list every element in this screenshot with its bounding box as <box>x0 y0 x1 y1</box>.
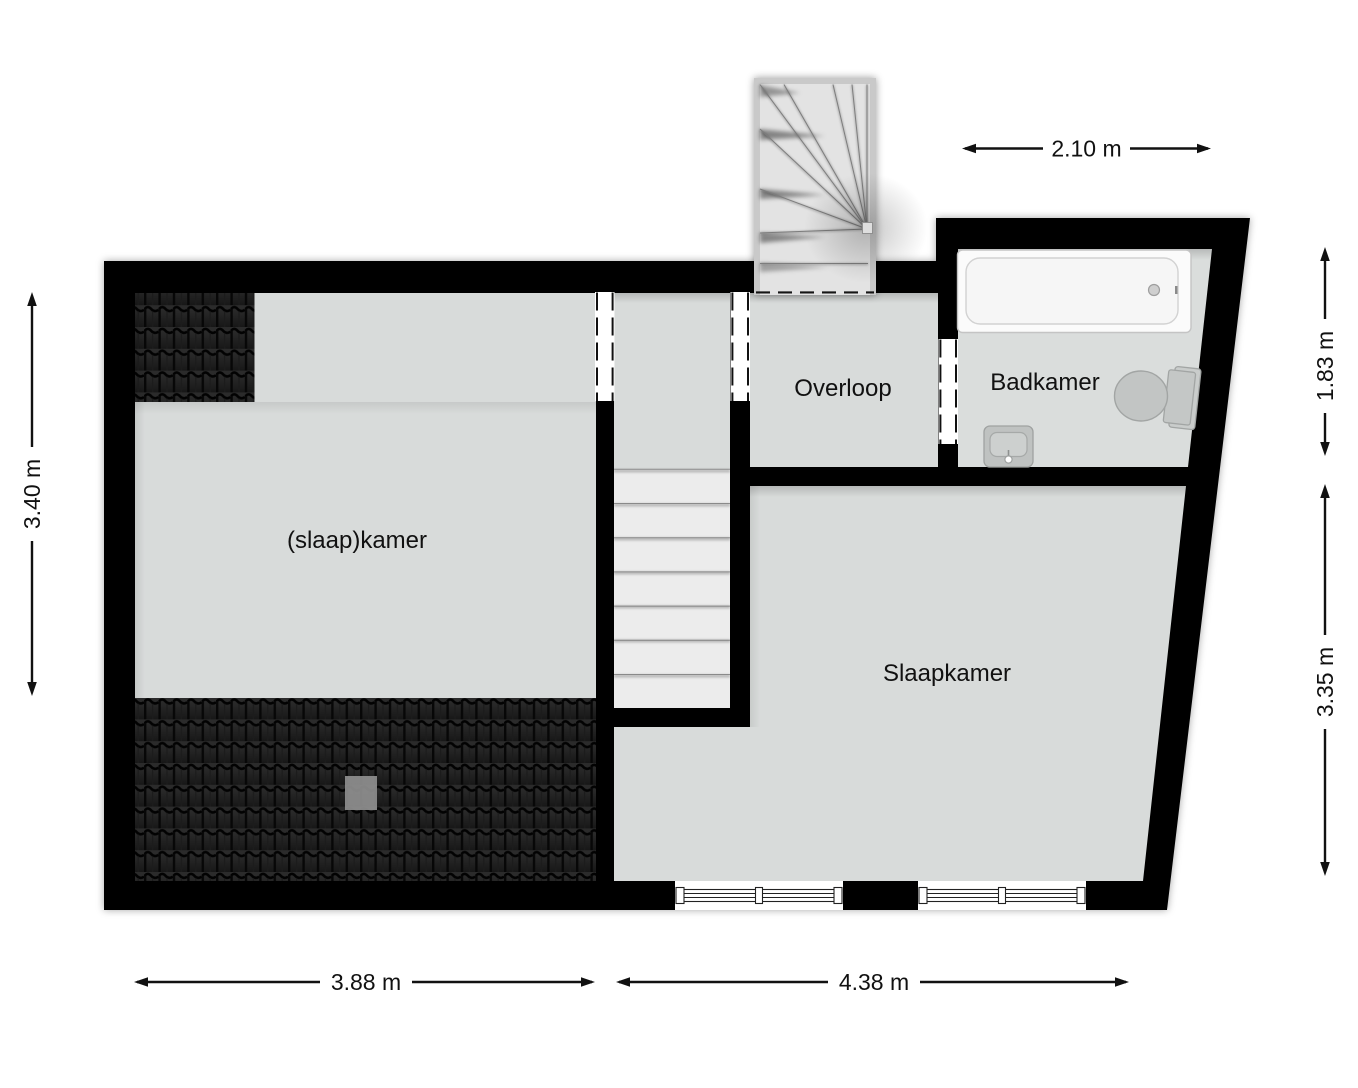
svg-text:3.35 m: 3.35 m <box>1312 647 1338 717</box>
svg-text:4.38 m: 4.38 m <box>839 969 909 995</box>
svg-text:Slaapkamer: Slaapkamer <box>883 660 1011 687</box>
svg-text:2.10 m: 2.10 m <box>1051 136 1121 162</box>
svg-text:1.83 m: 1.83 m <box>1312 331 1338 401</box>
svg-text:3.88 m: 3.88 m <box>331 969 401 995</box>
svg-text:Overloop: Overloop <box>794 375 891 402</box>
svg-text:(slaap)kamer: (slaap)kamer <box>287 527 427 554</box>
svg-text:3.40 m: 3.40 m <box>19 459 45 529</box>
svg-text:Badkamer: Badkamer <box>990 369 1099 396</box>
